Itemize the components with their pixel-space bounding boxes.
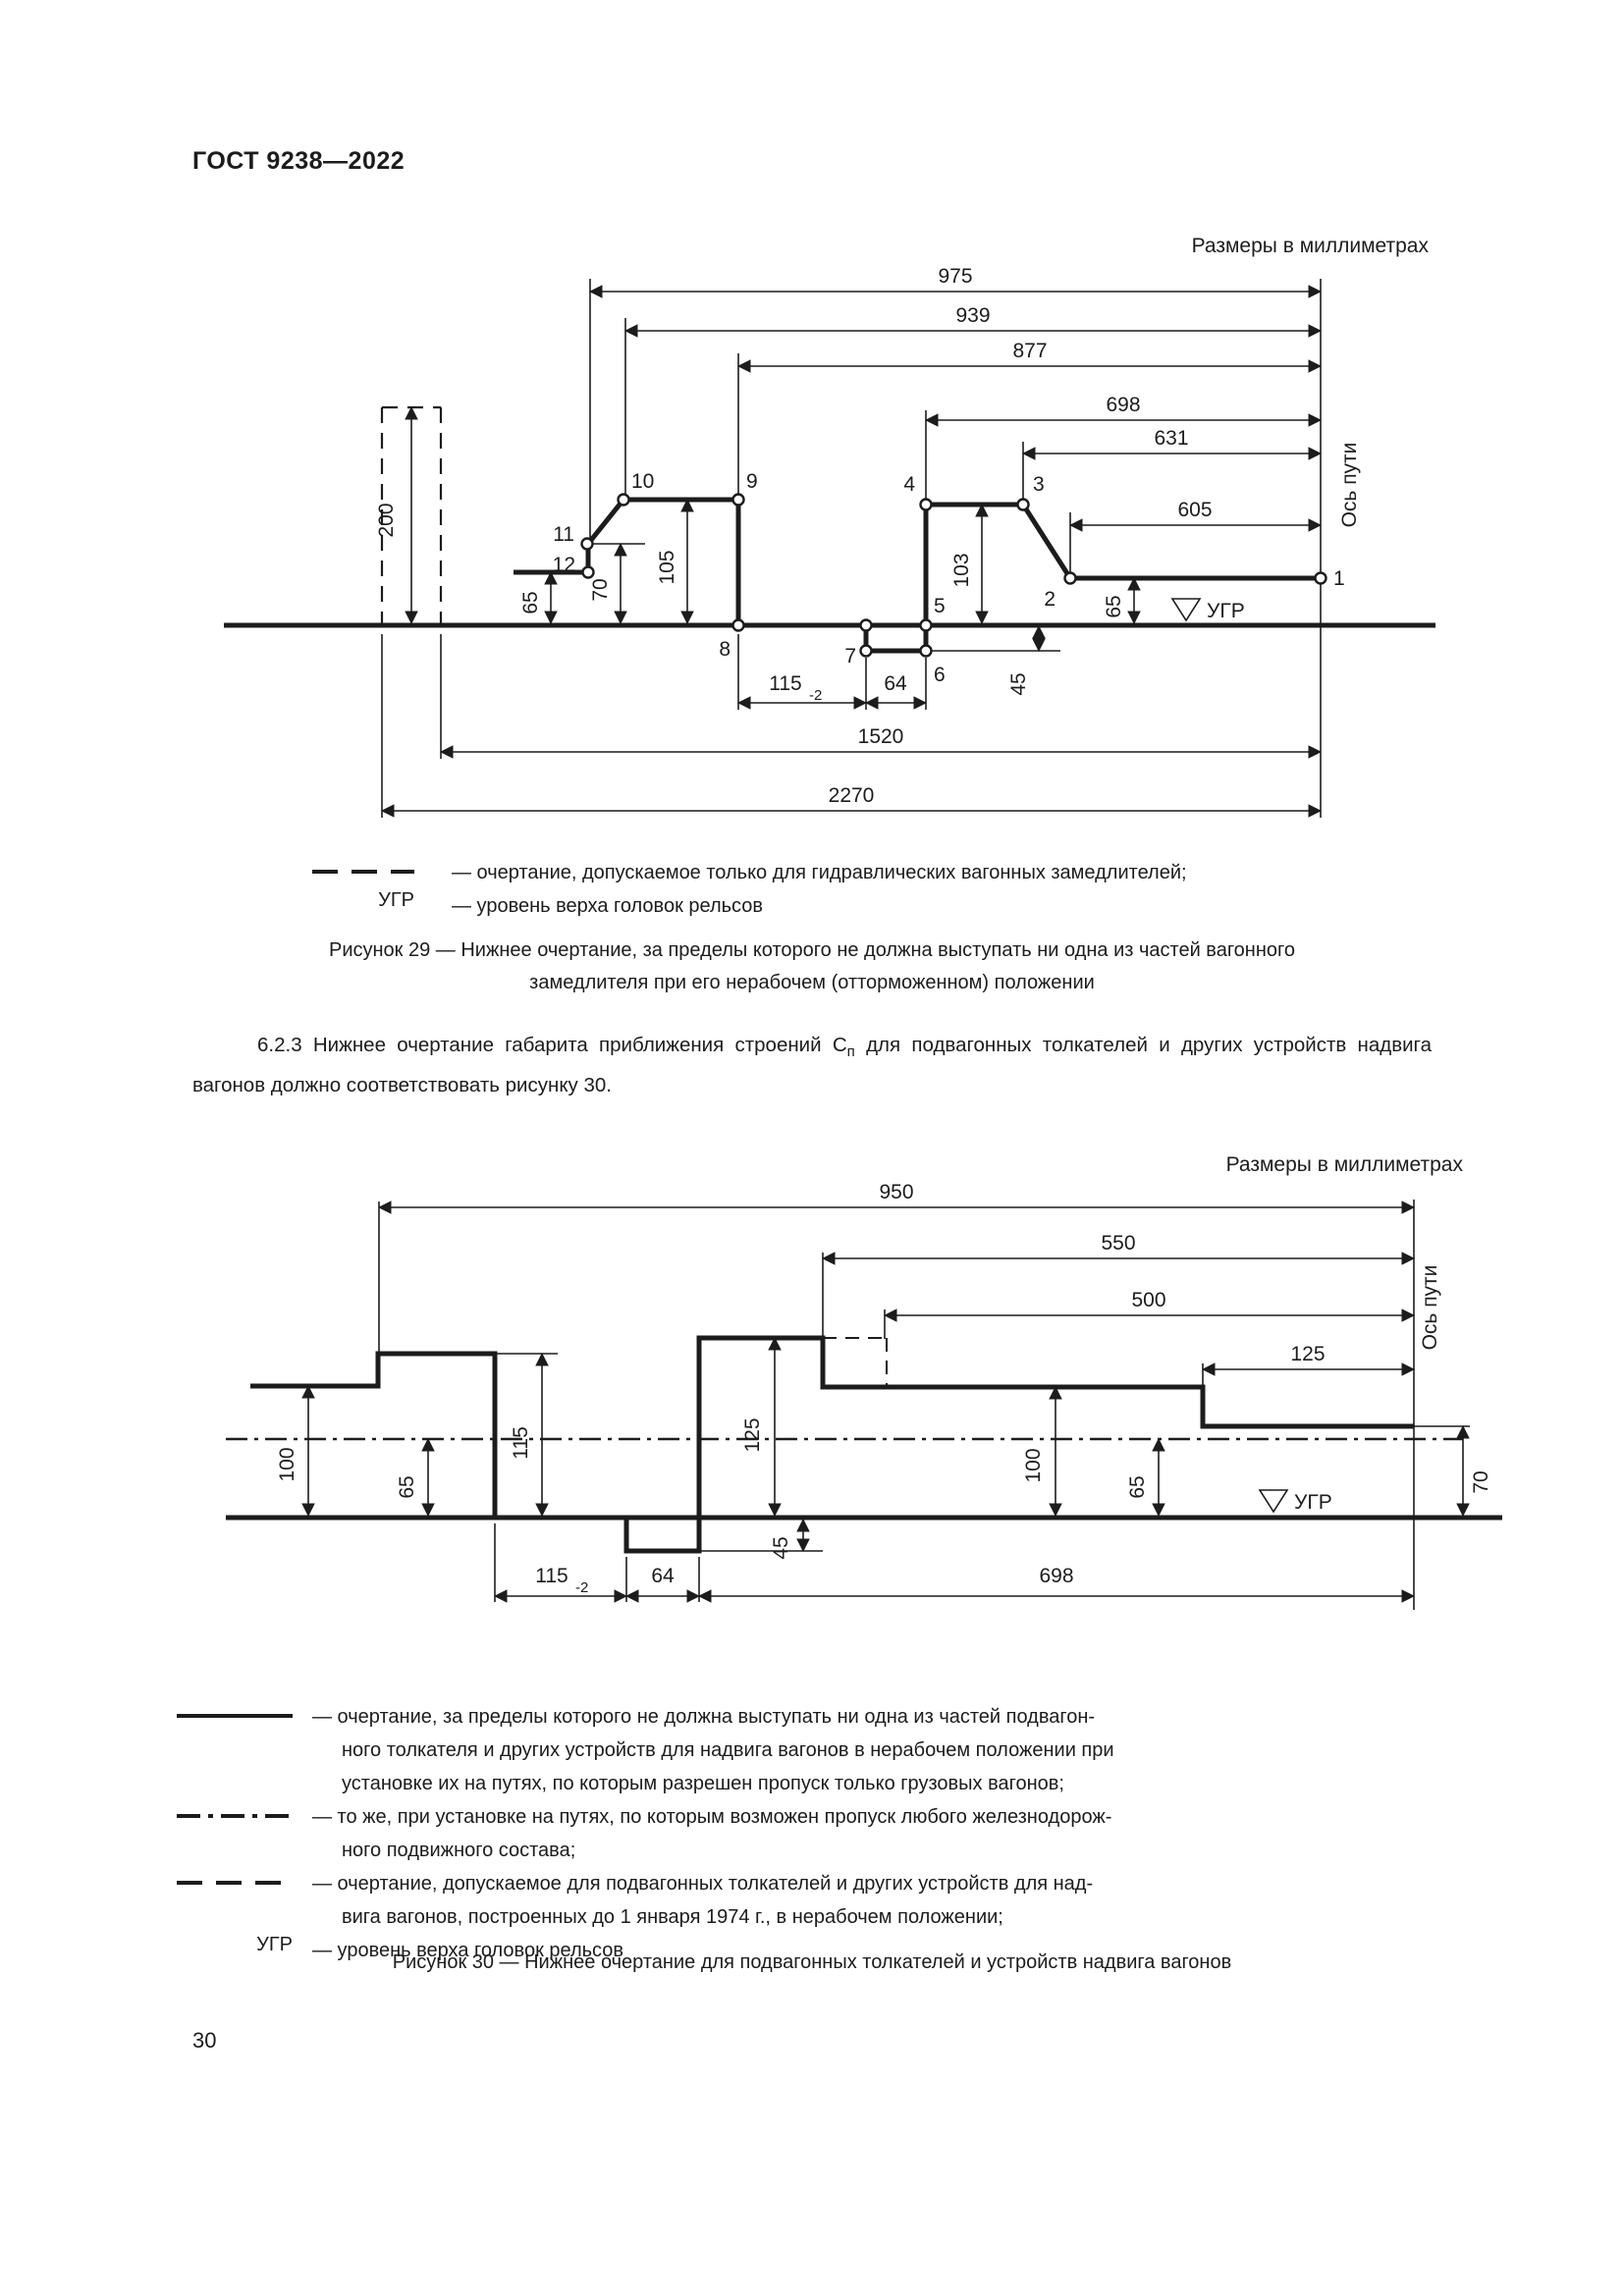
dim-65l-label: 65: [519, 591, 542, 614]
dim-115-label: 115: [769, 672, 801, 695]
dashdot-line-sample-icon: [177, 1814, 293, 1818]
fig29-horizontal-dimensions: [382, 292, 1321, 811]
dim-1520-label: 1520: [858, 725, 904, 748]
fig29-track-axis-label: Ось пути: [1338, 443, 1361, 528]
page-header: ГОСТ 9238—2022: [192, 147, 405, 176]
dim-605-label: 605: [1177, 499, 1212, 521]
svg-text:3: 3: [1033, 473, 1045, 496]
dim-70-label: 70: [1470, 1470, 1492, 1493]
dim-200-label: 200: [375, 503, 398, 537]
dim-70-label: 70: [589, 578, 612, 601]
fig29-legend-item-dashed: — очертание, допускаемое только для гидр…: [312, 856, 1441, 889]
svg-text:5: 5: [934, 595, 946, 617]
fig29-caption: Рисунок 29 — Нижнее очертание, за предел…: [98, 934, 1526, 999]
dim-125-mid-label: 125: [741, 1417, 764, 1452]
svg-text:10: 10: [631, 470, 654, 493]
svg-text:4: 4: [903, 473, 915, 496]
dim-975-label: 975: [938, 265, 972, 288]
fig30-ugr-label: УГР: [1294, 1491, 1332, 1514]
dim-105-label: 105: [656, 550, 678, 584]
dim-877-label: 877: [1012, 340, 1047, 362]
dim-2270-label: 2270: [829, 784, 875, 807]
fig29-lower-clearance-profile: [224, 500, 1435, 651]
dim-939-label: 939: [955, 304, 990, 327]
svg-text:11: 11: [553, 523, 574, 546]
fig30-units-note: Размеры в миллиметрах: [1226, 1153, 1464, 1176]
svg-text:8: 8: [719, 638, 731, 661]
svg-text:7: 7: [844, 645, 856, 667]
fig30-legend-item-dashdot: — то же, при установке на путях, по кото…: [177, 1800, 1483, 1867]
fig29-dimension-labels: 975 939 877 698 631 605 1520 2270 115 -2…: [375, 265, 1213, 807]
fig30-pre1974-dashed-outline: [823, 1338, 887, 1387]
fig29-extension-lines: [382, 279, 1321, 818]
fig30-horizontal-dimensions: [379, 1207, 1414, 1596]
dim-125-top-label: 125: [1290, 1343, 1325, 1365]
fig29-rail-level-mark: УГР: [1172, 599, 1245, 622]
dim-65l-label: 65: [396, 1475, 418, 1498]
document-page: ГОСТ 9238—2022 Размеры в миллиметрах: [0, 0, 1624, 2296]
level-mark-triangle-icon: [1172, 599, 1200, 620]
fig30-legend-item-dashed: — очертание, допускаемое для подвагонных…: [177, 1867, 1483, 1934]
dim-950-label: 950: [879, 1181, 913, 1203]
fig30-caption: Рисунок 30 — Нижнее очертание для подваг…: [98, 1951, 1526, 1974]
fig29-ugr-label: УГР: [1207, 600, 1245, 622]
svg-text:2: 2: [1044, 588, 1056, 611]
dim-100r-label: 100: [1022, 1448, 1045, 1482]
dim-45-label: 45: [1007, 672, 1030, 695]
dim-45-label: 45: [770, 1536, 792, 1559]
level-mark-triangle-icon: [1260, 1490, 1287, 1512]
figure-29-drawing: Размеры в миллиметрах: [177, 226, 1473, 825]
fig29-legend: — очертание, допускаемое только для гидр…: [312, 856, 1441, 923]
page-number: 30: [192, 2028, 216, 2054]
solid-line-sample-icon: [177, 1714, 293, 1718]
dim-64-label: 64: [651, 1565, 675, 1587]
dim-115b-label: 115: [535, 1565, 568, 1587]
fig29-legend-item-ugr: УГР — уровень верха головок рельсов: [312, 889, 1441, 923]
svg-text:1: 1: [1333, 567, 1345, 590]
dim-103-label: 103: [950, 553, 973, 587]
svg-text:6: 6: [934, 664, 946, 686]
fig30-track-axis-label: Ось пути: [1419, 1265, 1441, 1351]
dim-65r-label: 65: [1103, 595, 1125, 617]
fig30-legend-item-solid: — очертание, за пределы которого не долж…: [177, 1700, 1483, 1800]
fig30-legend: — очертание, за пределы которого не долж…: [177, 1700, 1483, 1967]
dashed-line-sample-icon: [177, 1881, 293, 1885]
svg-text:12: 12: [553, 554, 575, 576]
dim-115v-label: 115: [510, 1426, 532, 1459]
dim-64-label: 64: [884, 672, 907, 695]
clause-6-2-3: 6.2.3 Нижнее очертание габарита приближе…: [192, 1029, 1432, 1102]
fig29-units-note: Размеры в миллиметрах: [1192, 235, 1430, 257]
dim-115-tolerance: -2: [809, 687, 822, 704]
dim-65r-label: 65: [1126, 1475, 1149, 1498]
svg-text:9: 9: [746, 470, 758, 493]
dim-631-label: 631: [1154, 427, 1188, 450]
fig30-rail-level-mark: УГР: [1260, 1490, 1332, 1514]
dashed-line-sample-icon: [312, 870, 414, 874]
dim-100l-label: 100: [276, 1447, 298, 1481]
dim-115b-tolerance: -2: [575, 1579, 588, 1596]
dim-698-label: 698: [1106, 394, 1140, 416]
figure-30-drawing: Размеры в миллиметрах: [196, 1129, 1532, 1620]
dim-500-label: 500: [1131, 1289, 1165, 1311]
dim-698-label: 698: [1039, 1565, 1073, 1587]
dim-550-label: 550: [1101, 1232, 1135, 1255]
